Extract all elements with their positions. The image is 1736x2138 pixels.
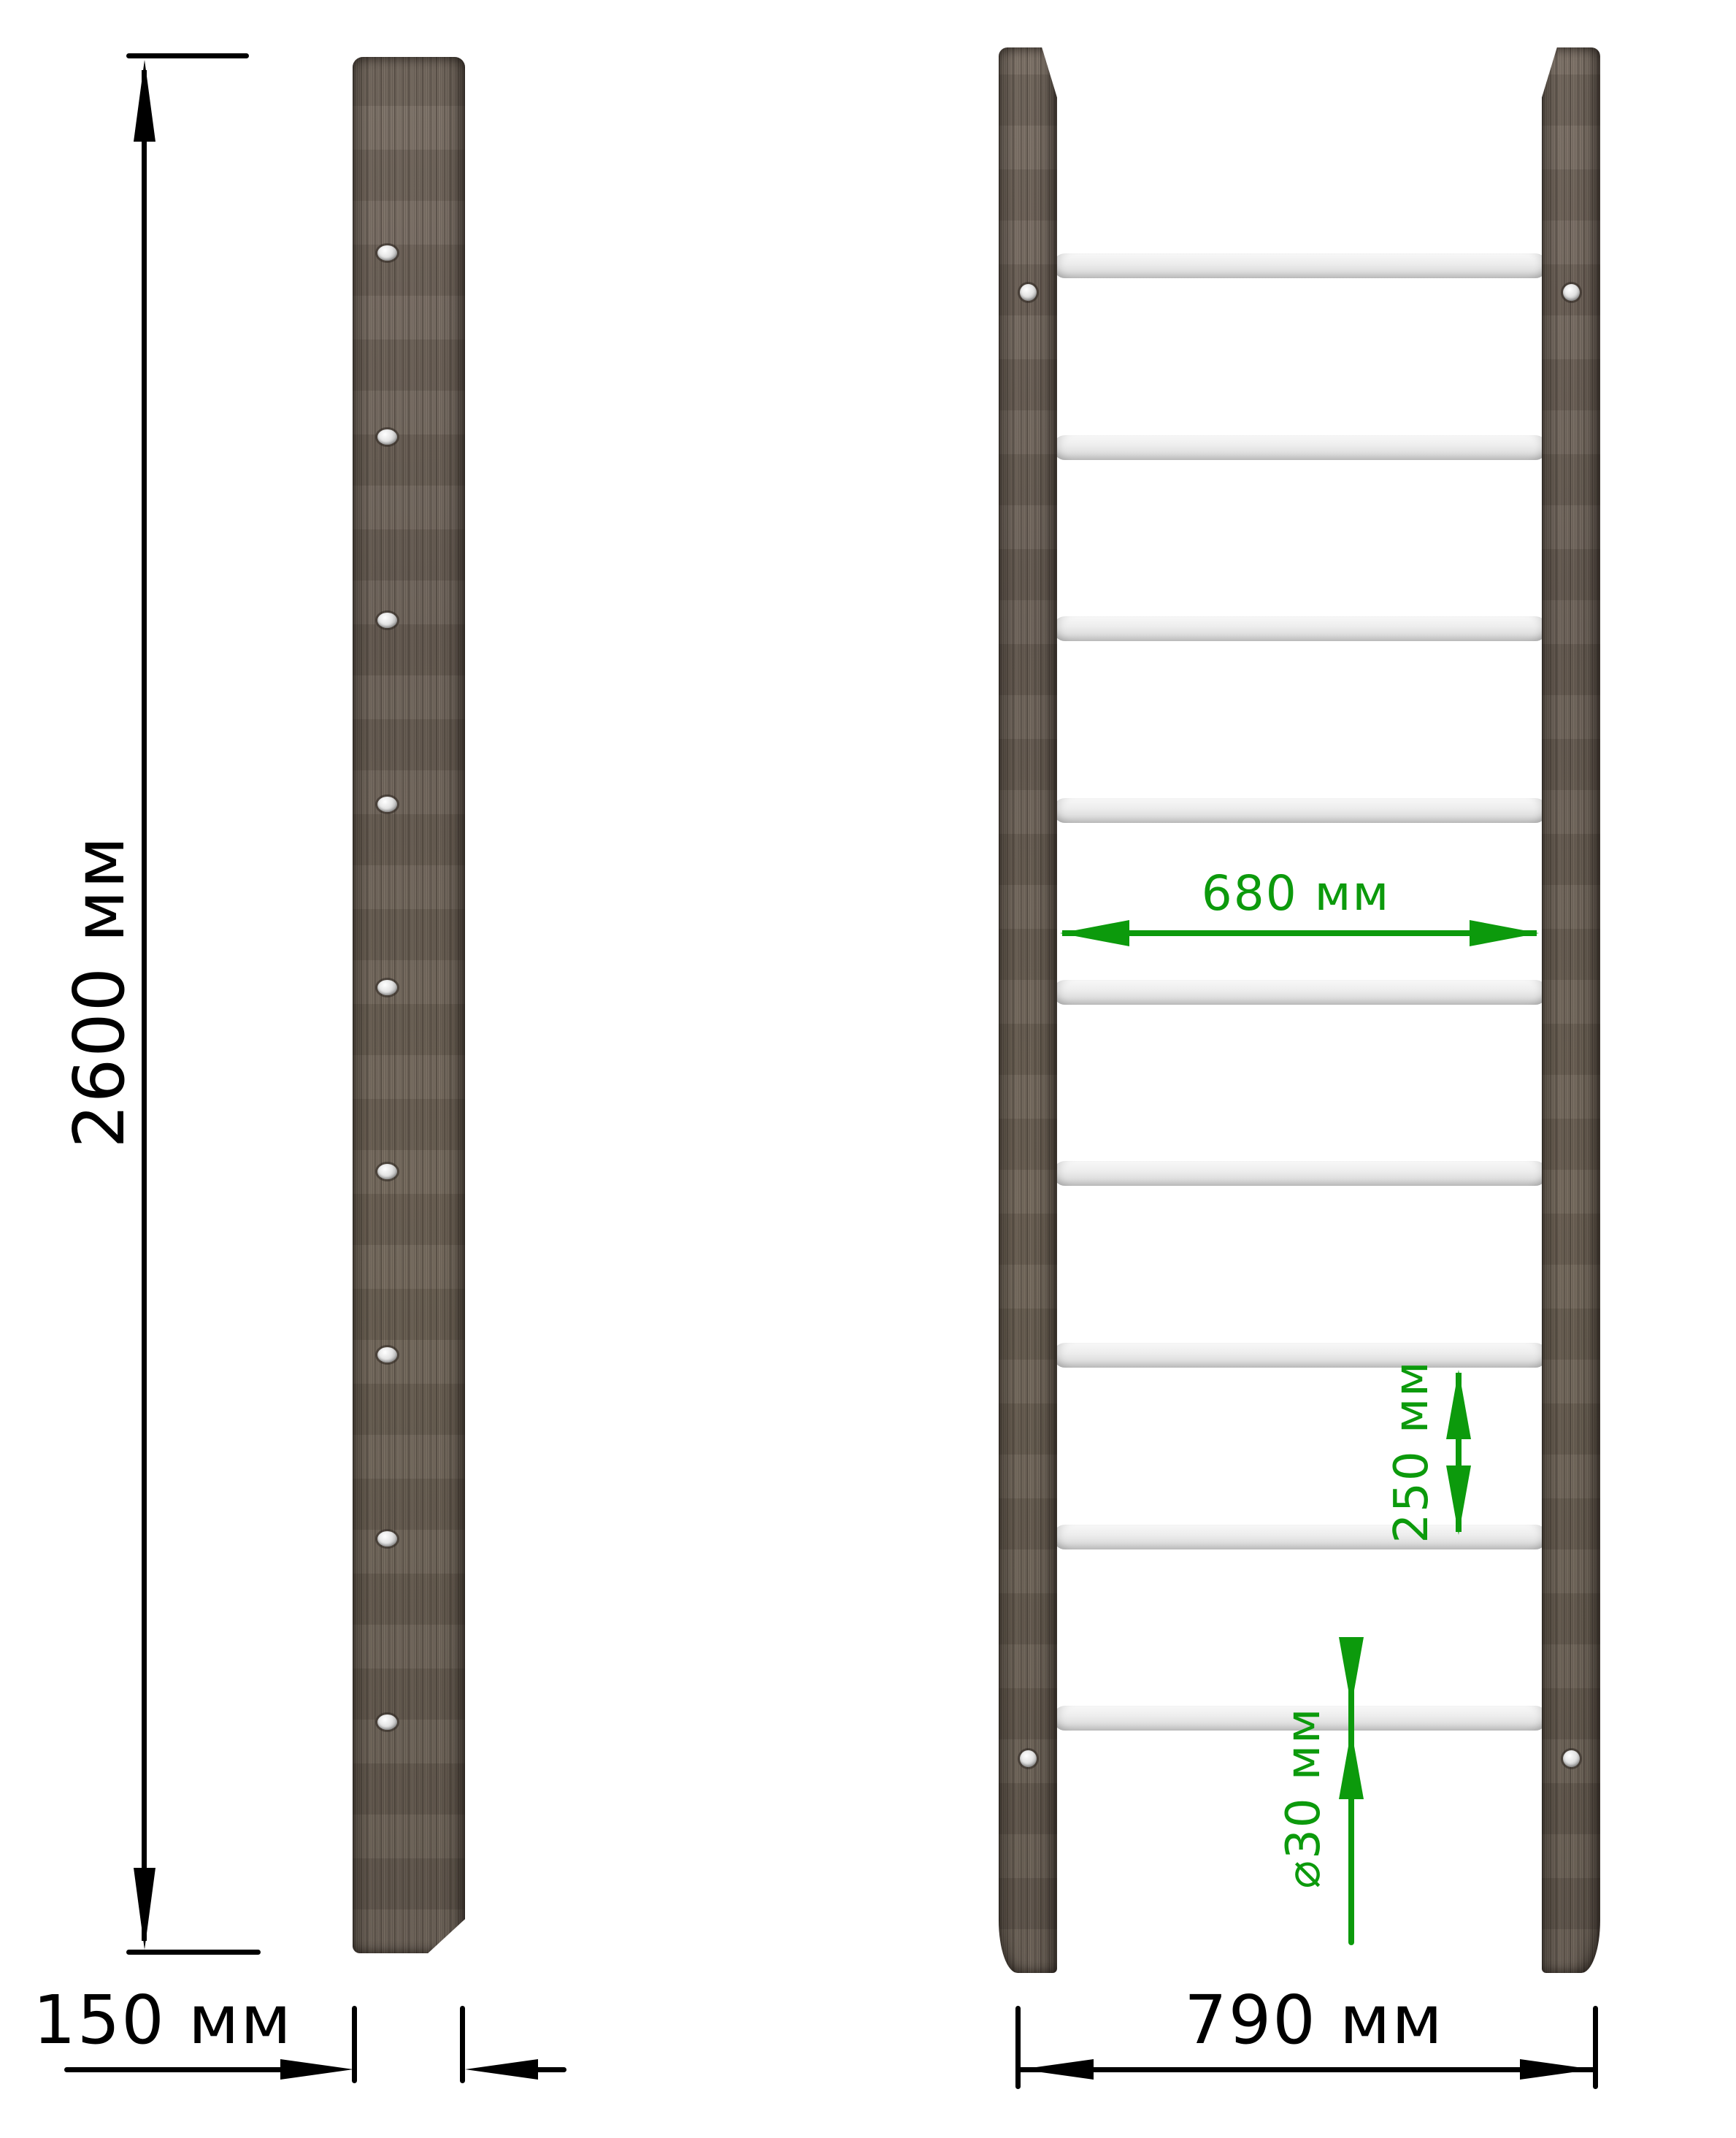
- screw: [377, 1347, 397, 1363]
- rung: [1053, 1161, 1548, 1186]
- rung-diameter-label: ⌀30 мм: [1276, 1615, 1332, 1980]
- arrowhead-right-icon: [1470, 920, 1539, 946]
- rung: [1053, 616, 1548, 641]
- arrowhead-left-icon: [1021, 2059, 1094, 2080]
- rung: [1053, 253, 1548, 278]
- screw: [1020, 1750, 1037, 1767]
- rung: [1053, 980, 1548, 1005]
- leader-line-left: [64, 2067, 285, 2072]
- rung-spacing-label: 250 мм: [1384, 1269, 1440, 1634]
- arrowhead-up-icon: [1339, 1730, 1364, 1799]
- stile-left: [999, 47, 1057, 1973]
- arrowhead-left-icon: [465, 2059, 538, 2080]
- screw: [377, 245, 397, 261]
- dimension-line-horizontal: [1021, 2067, 1593, 2072]
- screw: [1563, 1750, 1580, 1767]
- arrowhead-right-icon: [1520, 2059, 1593, 2080]
- arrowhead-left-icon: [1060, 920, 1129, 946]
- extension-tick-bottom: [126, 1950, 261, 1955]
- arrowhead-up-icon: [1446, 1370, 1471, 1439]
- inner-width-label: 680 мм: [1077, 866, 1515, 922]
- screw: [377, 797, 397, 812]
- arrowhead-right-icon: [280, 2059, 353, 2080]
- extension-tick-right: [1593, 2006, 1598, 2089]
- screw: [1020, 284, 1037, 301]
- extension-tick-left: [352, 2006, 357, 2083]
- screw: [377, 980, 397, 995]
- dimension-drawing-canvas: 2600 мм 150 мм 680 мм: [0, 0, 1736, 2138]
- extension-tick-top: [126, 53, 249, 58]
- arrowhead-down-icon: [134, 1868, 155, 1950]
- screw: [377, 1714, 397, 1730]
- rung: [1053, 798, 1548, 823]
- leader-line-right: [531, 2067, 566, 2072]
- rung: [1053, 435, 1548, 460]
- screw: [377, 613, 397, 628]
- side-plank: [353, 57, 465, 1953]
- width-label: 790 мм: [1095, 1981, 1533, 2060]
- rung: [1053, 1343, 1548, 1368]
- extension-tick-left: [1015, 2006, 1021, 2089]
- extension-tick-right: [460, 2006, 465, 2083]
- screw: [377, 1164, 397, 1179]
- arrowhead-down-icon: [1339, 1637, 1364, 1706]
- depth-label: 150 мм: [17, 1981, 309, 2060]
- dimension-line-horizontal: [1062, 930, 1537, 936]
- height-label: 2600 мм: [61, 773, 139, 1211]
- screw: [377, 429, 397, 445]
- arrowhead-up-icon: [134, 60, 155, 142]
- screw: [1563, 284, 1580, 301]
- dimension-line-vertical: [142, 70, 147, 1941]
- stile-right: [1542, 47, 1600, 1973]
- rung: [1053, 1525, 1548, 1549]
- screw: [377, 1531, 397, 1547]
